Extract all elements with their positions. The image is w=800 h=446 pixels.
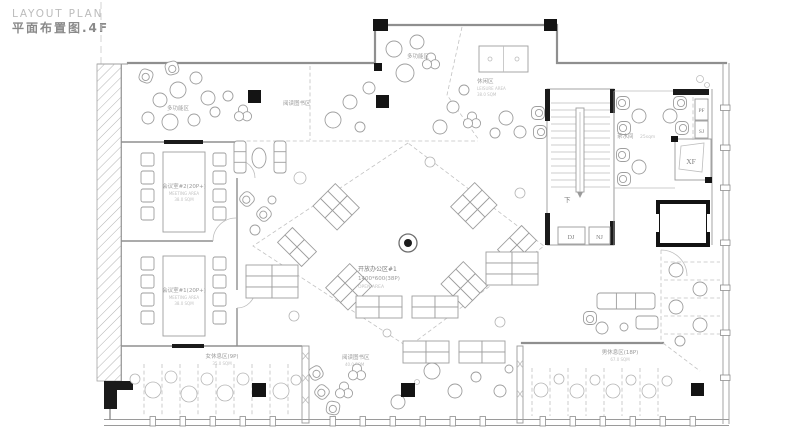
title-block: LAYOUT PLAN 平面布置图.4F xyxy=(12,2,109,64)
leisure-label: 休闲区 xyxy=(477,77,494,85)
meeting1-label: 会议室#1(20P+) xyxy=(162,286,206,294)
open-office-area: 开放办公区#1 1400*600(38P) OPEN AREA xyxy=(246,157,538,363)
closet-nj-label: NJ xyxy=(596,235,603,241)
sliding-door xyxy=(164,140,203,144)
meeting2-label-en: MEETING AREA xyxy=(169,191,200,196)
multifunction-left-label: 多功能区 xyxy=(167,104,190,112)
right-corridor xyxy=(664,262,720,346)
leisure-area-label: 38.0 SQM xyxy=(477,92,497,97)
men-rest-label: 男休息区(18P) xyxy=(602,348,639,356)
stair-down-label: 下 xyxy=(564,196,571,204)
open-office-label: 开放办公区#1 xyxy=(358,265,397,273)
women-rest-label: 女休息区(9P) xyxy=(205,352,238,360)
plan-title-cn: 平面布置图.4F xyxy=(12,20,109,35)
shaft-sj-label: SJ xyxy=(699,129,705,135)
meeting-room-2: 会议室#2(20P+) MEETING AREA 38.0 SQM xyxy=(141,152,226,232)
women-rest-area: 女休息区(9P) 35.0 SQM xyxy=(130,352,301,416)
meeting2-area-label: 38.0 SQM xyxy=(174,197,194,202)
leisure-area: 休闲区 LEISURE AREA 38.0 SQM xyxy=(477,46,547,139)
women-rest-pods xyxy=(130,364,301,416)
open-office-spec: 1400*600(38P) xyxy=(358,276,400,282)
meeting1-label-en: MEETING AREA xyxy=(169,295,200,300)
reading-top-label: 阅读图书区 xyxy=(283,99,311,107)
shaft-pf-label: PF xyxy=(698,108,704,114)
women-rest-area-label: 35.0 SQM xyxy=(212,361,232,366)
meeting-room-1: 会议室#1(20P+) MEETING AREA 38.0 SQM xyxy=(141,256,226,336)
open-office-label-en: OPEN AREA xyxy=(358,284,385,290)
multifunction-area-left: 多功能区 xyxy=(138,60,252,130)
closet-nj: NJ xyxy=(589,227,610,244)
men-rest-area: 男休息区(18P) 67.0 SQM xyxy=(532,293,672,416)
meeting2-label: 会议室#2(20P+) xyxy=(162,182,206,190)
floor-plan-page: LAYOUT PLAN 平面布置图.4F xyxy=(0,0,800,446)
men-rest-pods xyxy=(532,368,672,416)
pantry-label: 茶水间 xyxy=(617,132,634,140)
shaft-pf: PF xyxy=(695,99,708,120)
closet-dj-label: DJ xyxy=(568,235,575,241)
door-arc xyxy=(213,218,236,241)
meeting1-area-label: 38.0 SQM xyxy=(174,301,194,306)
men-rest-area-label: 67.0 SQM xyxy=(610,357,630,362)
lounge-nook xyxy=(234,141,286,235)
partition-wall xyxy=(517,346,523,423)
fire-cabinet: XF xyxy=(671,136,712,183)
reading-bottom-label: 阅读图书区 xyxy=(342,353,370,361)
partition-wall xyxy=(302,346,309,423)
multifunction-top-label: 多功能区 xyxy=(407,52,430,60)
floor-plan-drawing: LAYOUT PLAN 平面布置图.4F xyxy=(0,0,800,446)
leisure-label-en: LEISURE AREA xyxy=(477,86,506,91)
multifunction-area-top: 多功能区 xyxy=(386,35,440,82)
stair-direction-arrow xyxy=(577,192,583,198)
elevator-shaft xyxy=(655,202,711,245)
stair-core: 下 DJ NJ xyxy=(545,89,615,245)
left-hatch-wall xyxy=(97,64,133,420)
curtain-wall-right xyxy=(721,63,731,424)
curtain-wall-bottom xyxy=(104,417,729,427)
fire-cabinet-label: XF xyxy=(686,157,696,166)
closet-dj: DJ xyxy=(558,227,585,244)
pantry-area-label: 25sqm xyxy=(640,134,655,140)
plan-title-en: LAYOUT PLAN xyxy=(12,8,103,20)
sliding-door xyxy=(172,344,204,348)
central-feature xyxy=(399,234,417,252)
